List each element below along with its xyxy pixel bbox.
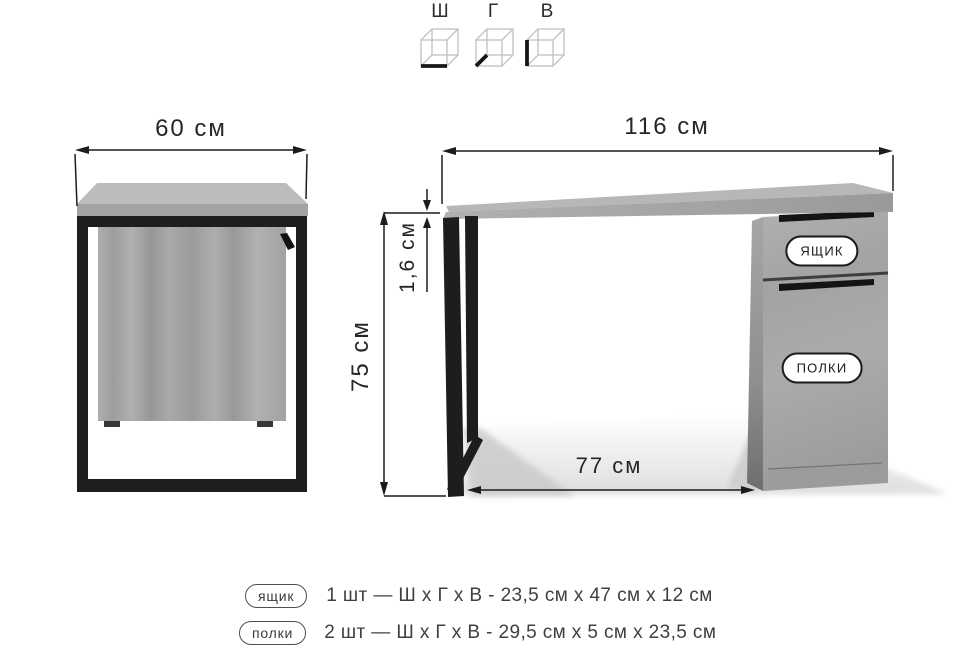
cabinet-foot: [104, 421, 120, 427]
legend-drawer-spec: 1 шт — Ш х Г х В - 23,5 см х 47 см х 12 …: [326, 585, 712, 607]
product-dimensions-diagram: Ш Г В 60 см 116 см 75 см 1,6 см 77 см ЯЩ…: [0, 0, 959, 672]
legend-drawer-badge: ящик: [245, 584, 307, 608]
cube-depth-icon: [476, 29, 513, 66]
diagram-canvas: [0, 0, 959, 672]
leg-opening-dimension-label: 77 см: [576, 453, 643, 479]
front-view-desk: [443, 183, 948, 497]
side-view-tabletop-edge: [77, 204, 308, 216]
height-dimension-label: 75 см: [347, 320, 375, 392]
top-thickness-dimension-label: 1,6 см: [396, 221, 420, 293]
drawer-badge: ЯЩИК: [785, 236, 858, 267]
dimension-1-6: [423, 189, 431, 292]
side-view-desk: [77, 183, 308, 492]
cube-height-icon: [527, 29, 564, 66]
legend-shelves-spec: 2 шт — Ш х Г х В - 29,5 см х 5 см х 23,5…: [324, 622, 716, 644]
legend-shelves-badge: полки: [239, 621, 306, 645]
cabinet-foot: [257, 421, 273, 427]
axis-label-height: В: [541, 1, 554, 23]
cabinet-side-panel: [747, 217, 763, 491]
shelves-badge: ПОЛКИ: [782, 353, 863, 384]
cube-width-icon: [421, 29, 458, 66]
front-width-dimension-label: 116 см: [624, 113, 709, 141]
front-view-leg-back-bar: [465, 216, 478, 443]
side-width-dimension-label: 60 см: [155, 115, 227, 143]
axis-label-depth: Г: [488, 1, 498, 23]
axis-label-width: Ш: [431, 1, 448, 23]
front-view-leg-front-bar: [443, 217, 464, 497]
side-view-tabletop-top: [77, 183, 308, 204]
legend-row-drawer: ящик 1 шт — Ш х Г х В - 23,5 см х 47 см …: [245, 584, 713, 608]
side-view-cabinet-panel: [98, 224, 286, 421]
legend-row-shelves: полки 2 шт — Ш х Г х В - 29,5 см х 5 см …: [239, 621, 716, 645]
